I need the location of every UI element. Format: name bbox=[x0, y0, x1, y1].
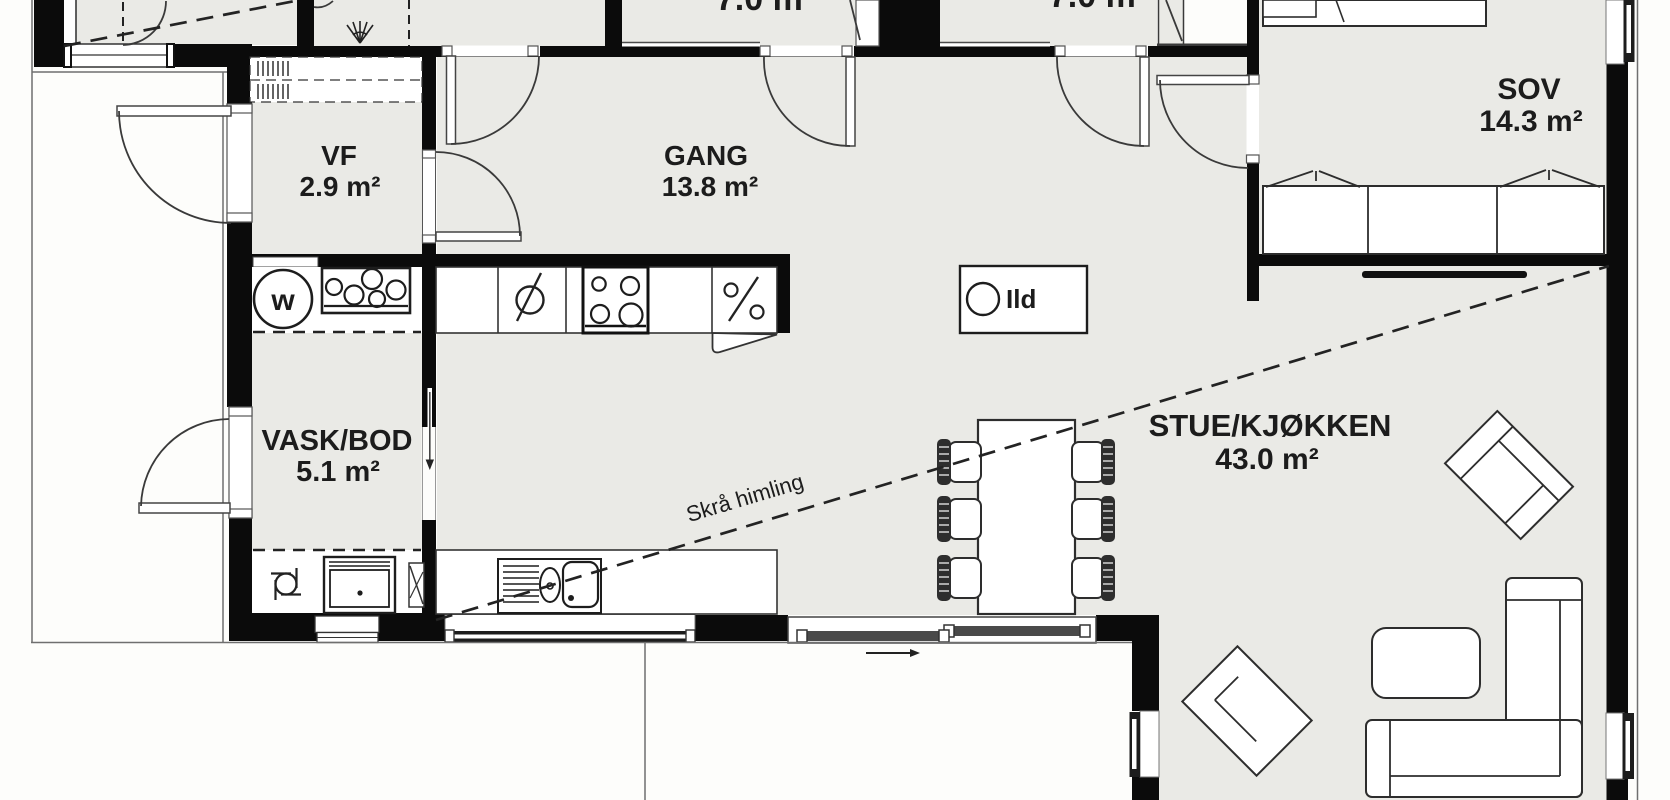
svg-text:5.1 m²: 5.1 m² bbox=[296, 456, 380, 488]
svg-text:STUE/KJØKKEN: STUE/KJØKKEN bbox=[1149, 408, 1392, 443]
svg-text:SOV: SOV bbox=[1497, 73, 1560, 106]
svg-text:7.0 m²: 7.0 m² bbox=[716, 0, 814, 18]
svg-text:GANG: GANG bbox=[664, 140, 748, 171]
svg-text:2.9 m²: 2.9 m² bbox=[300, 171, 381, 202]
svg-text:7.0 m²: 7.0 m² bbox=[1049, 0, 1147, 15]
svg-text:43.0 m²: 43.0 m² bbox=[1215, 443, 1318, 476]
svg-text:13.8 m²: 13.8 m² bbox=[662, 171, 759, 202]
svg-text:14.3 m²: 14.3 m² bbox=[1479, 105, 1582, 138]
svg-text:VF: VF bbox=[321, 140, 357, 171]
svg-text:VASK/BOD: VASK/BOD bbox=[262, 425, 413, 457]
svg-text:Ild: Ild bbox=[1006, 284, 1036, 314]
svg-text:w: w bbox=[270, 284, 295, 317]
